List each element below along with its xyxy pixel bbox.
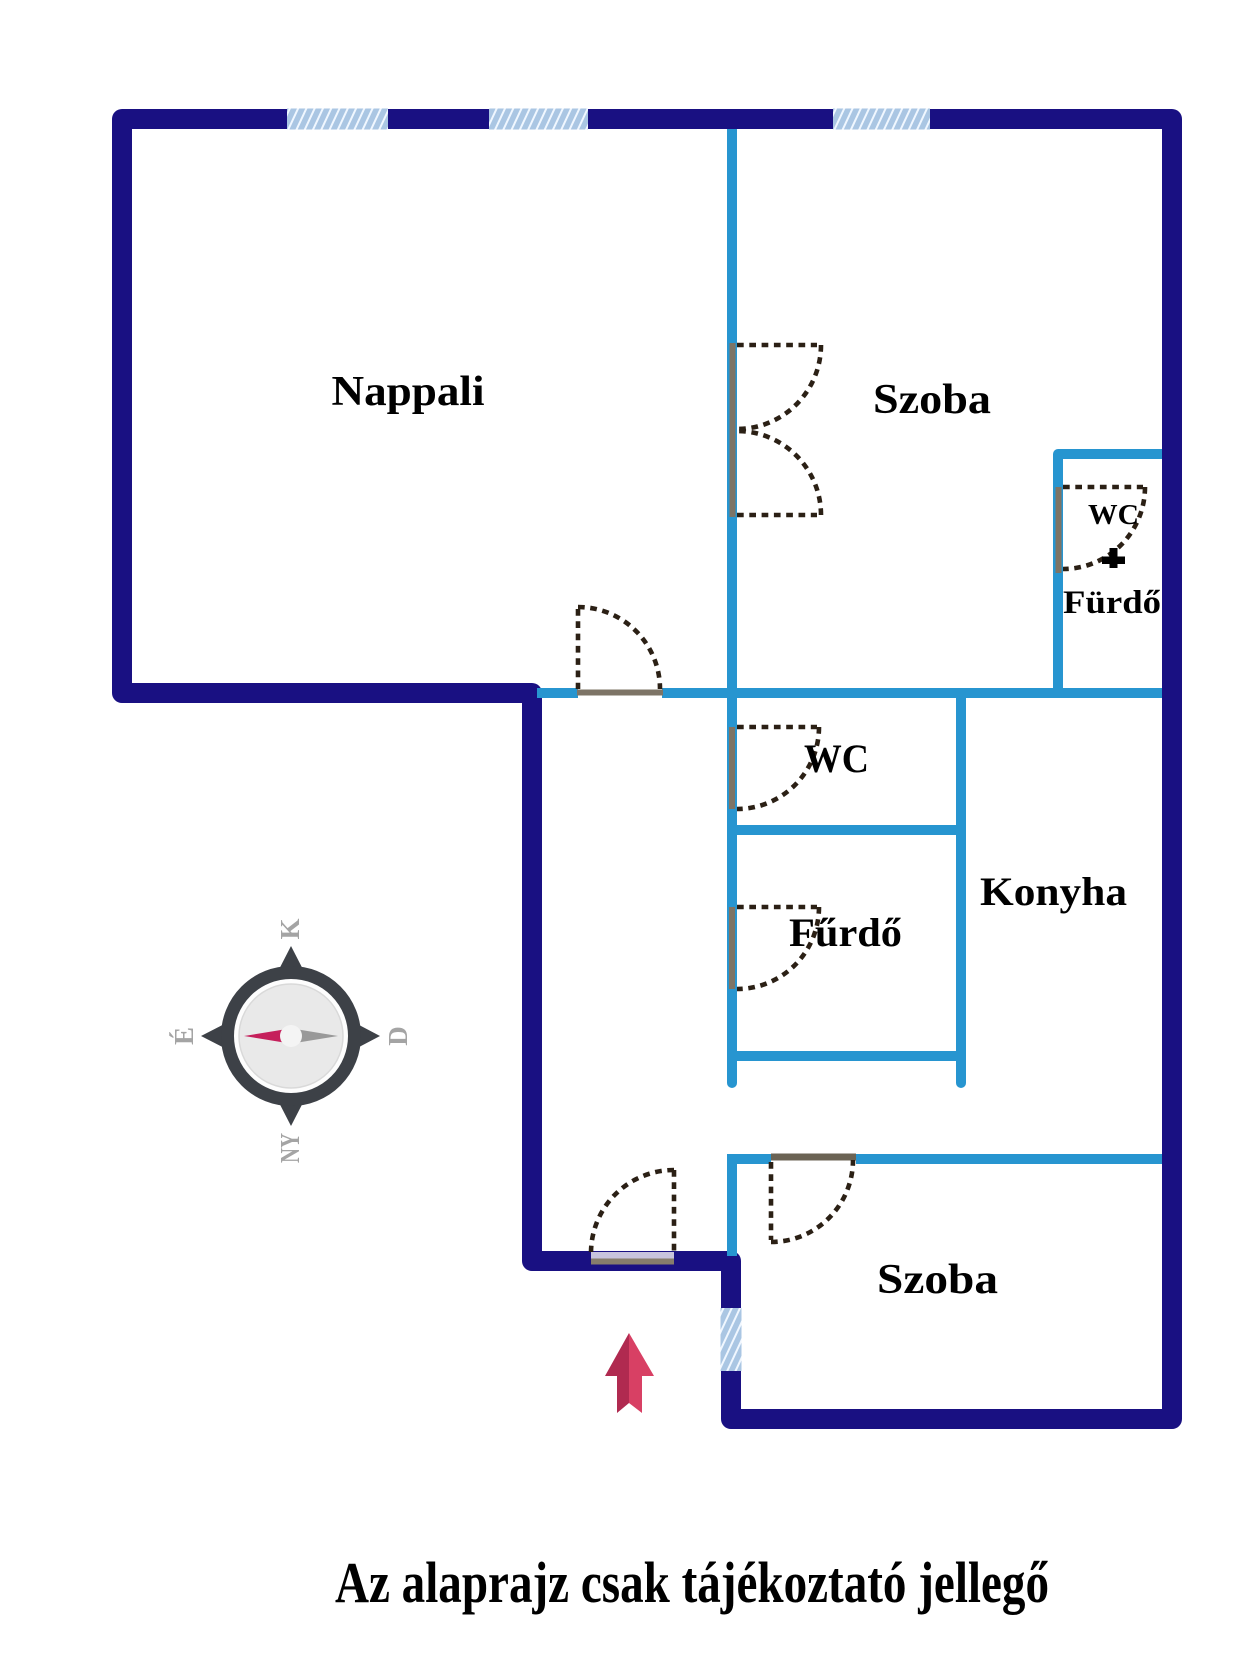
svg-text:Konyha: Konyha bbox=[980, 869, 1127, 914]
svg-text:K: K bbox=[275, 918, 305, 939]
svg-text:Fürdő: Fürdő bbox=[1063, 585, 1161, 621]
svg-text:Szoba: Szoba bbox=[873, 377, 991, 423]
svg-text:Fűrdő: Fűrdő bbox=[789, 910, 902, 955]
svg-text:Az alaprajz csak tájékoztató j: Az alaprajz csak tájékoztató jellegő bbox=[335, 1550, 1049, 1615]
svg-text:Szoba: Szoba bbox=[877, 1257, 998, 1303]
svg-text:NY: NY bbox=[275, 1133, 305, 1163]
svg-text:WC: WC bbox=[1088, 499, 1139, 531]
svg-text:É: É bbox=[169, 1027, 199, 1045]
svg-text:Nappali: Nappali bbox=[332, 369, 485, 415]
svg-text:D: D bbox=[383, 1026, 413, 1046]
svg-text:WC: WC bbox=[804, 736, 869, 781]
